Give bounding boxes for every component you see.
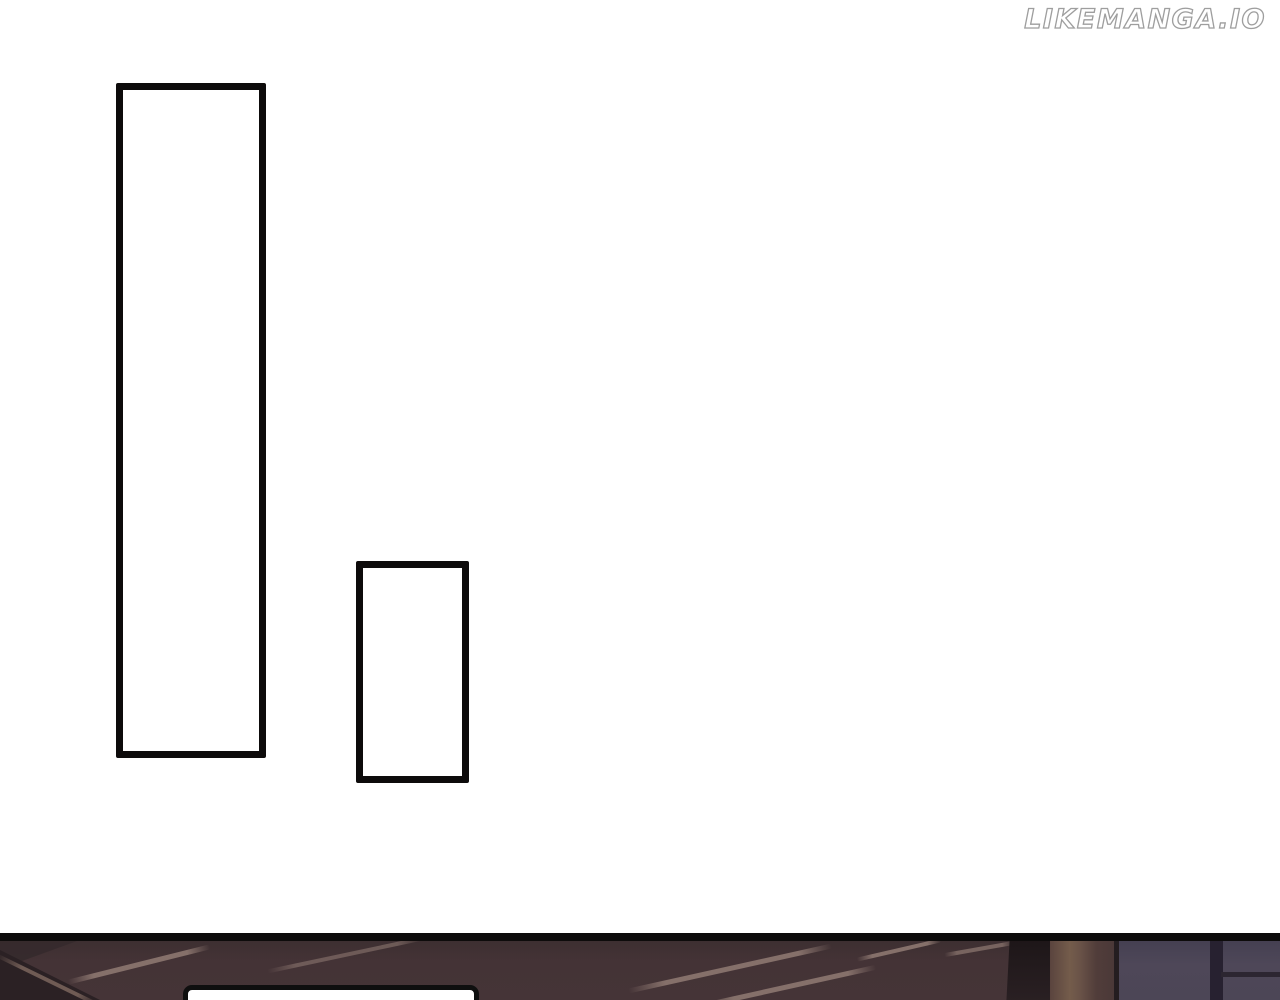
wood-planks (1050, 941, 1116, 1000)
speech-bubble (183, 985, 479, 1000)
manga-reader-page: LIKEMANGA.IO (0, 0, 1280, 1000)
wood-beam-dark (1006, 939, 1055, 1000)
window-frame-horizontal-bar (1221, 972, 1280, 977)
window-frame-vertical-bar (1210, 941, 1223, 1000)
light-streak (944, 941, 1014, 957)
light-streak (68, 944, 211, 984)
empty-panel-box-tall (116, 83, 266, 758)
light-streak (857, 938, 942, 961)
light-streak (267, 937, 422, 974)
empty-panel-box-small (356, 561, 469, 783)
bottom-artwork-panel (0, 933, 1280, 1000)
site-watermark: LIKEMANGA.IO (1024, 4, 1266, 35)
window-pane (1119, 941, 1280, 1000)
